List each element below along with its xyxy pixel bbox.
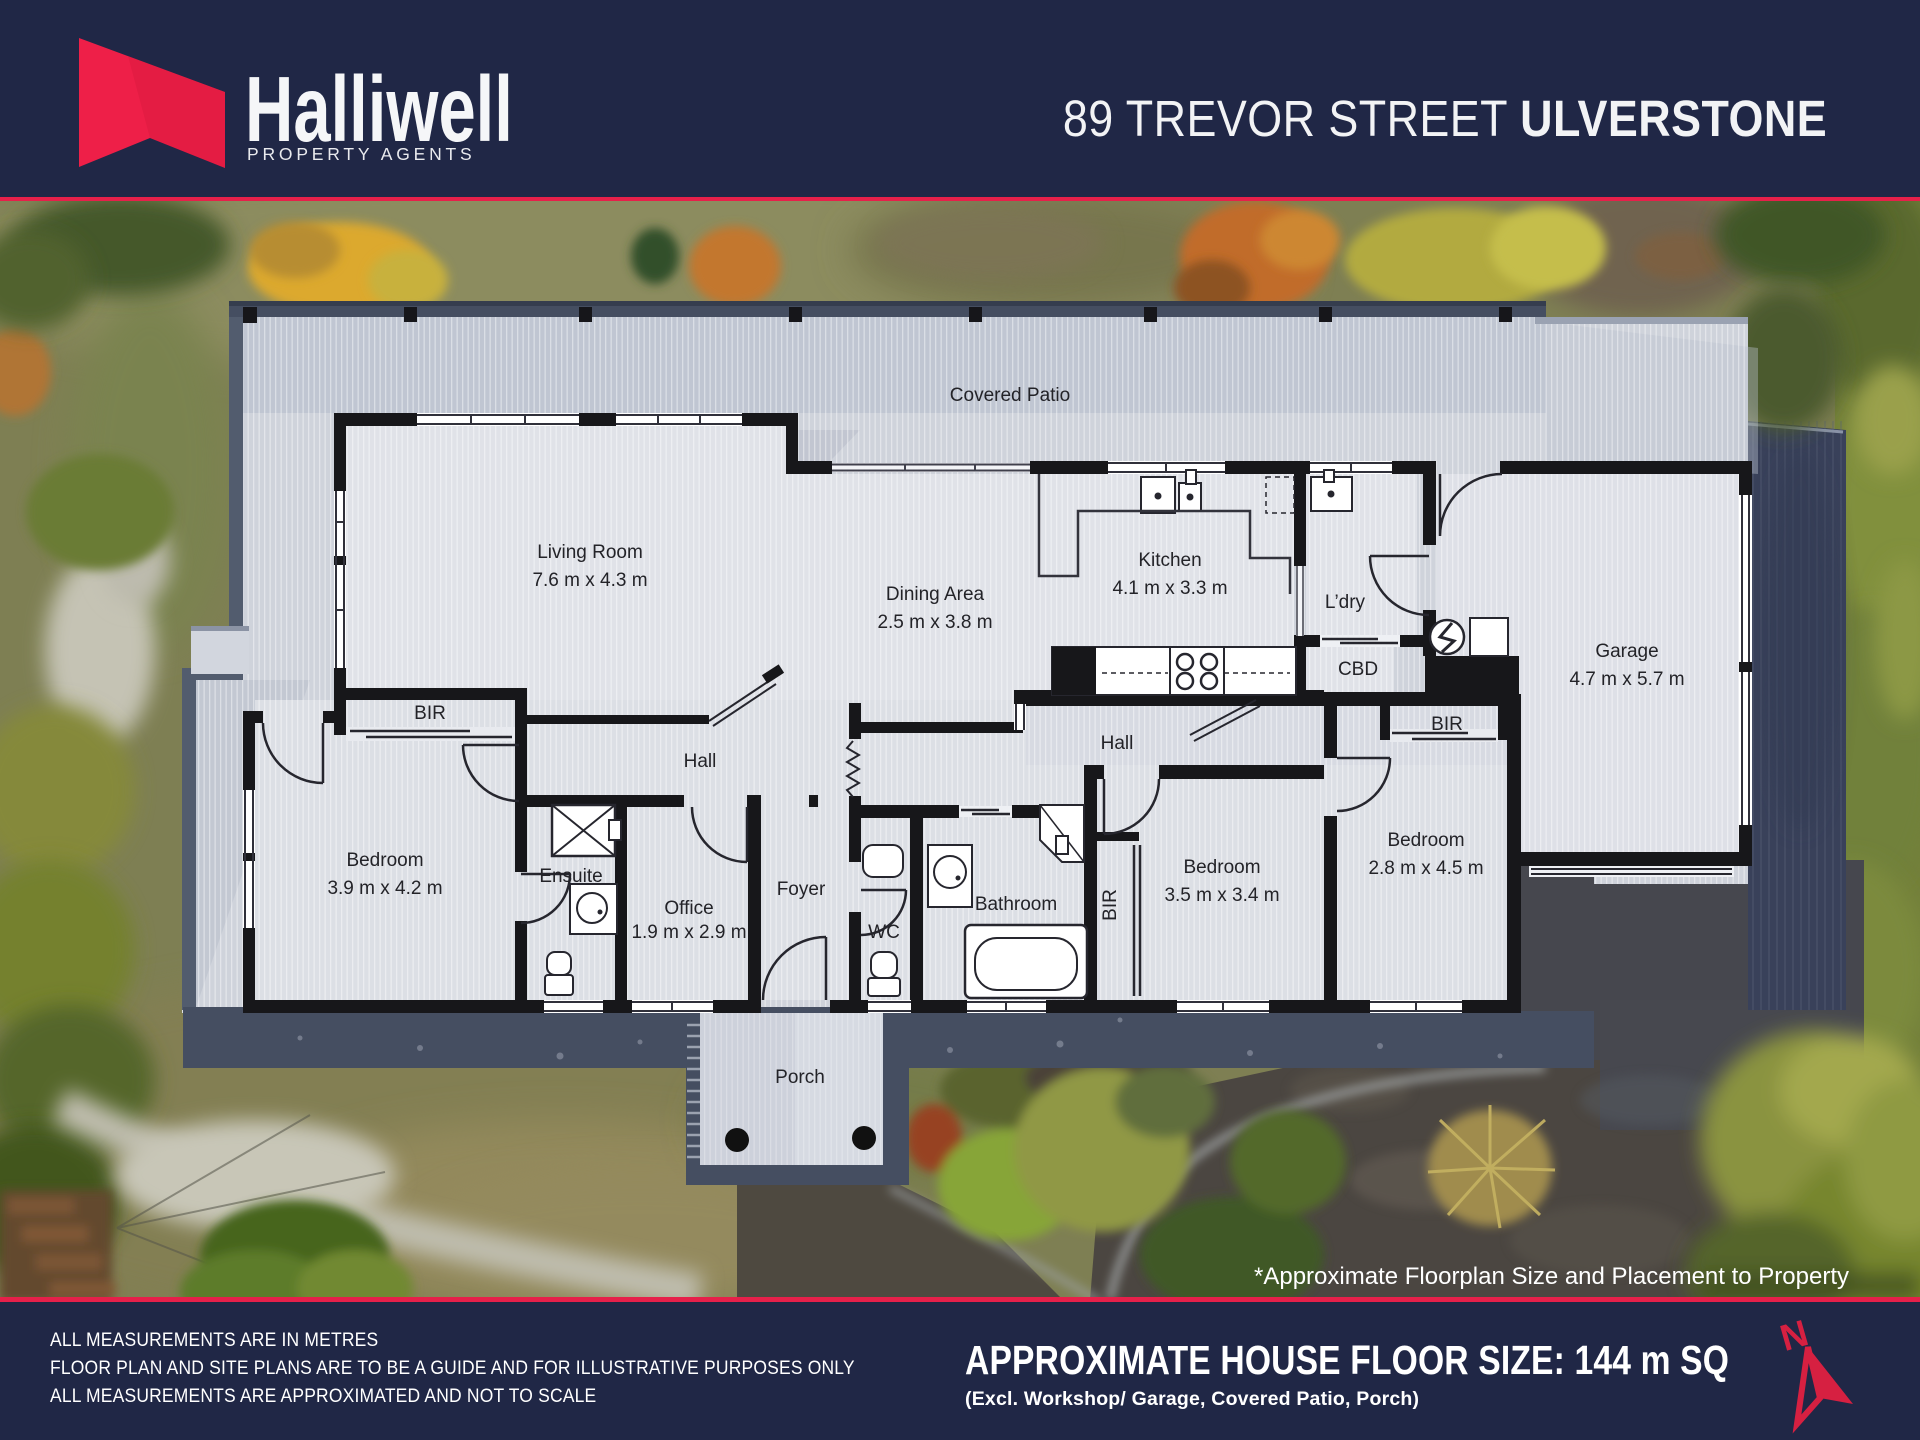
svg-text:Bedroom: Bedroom bbox=[1387, 830, 1464, 851]
svg-text:4.7 m x 5.7 m: 4.7 m x 5.7 m bbox=[1569, 669, 1684, 690]
svg-text:Living Room: Living Room bbox=[537, 542, 643, 563]
svg-text:BIR: BIR bbox=[414, 703, 446, 724]
svg-text:Covered Patio: Covered Patio bbox=[950, 385, 1070, 406]
svg-text:Garage: Garage bbox=[1595, 641, 1658, 662]
svg-text:Office: Office bbox=[664, 898, 713, 919]
svg-text:Porch: Porch bbox=[775, 1067, 825, 1088]
svg-text:WC: WC bbox=[868, 922, 900, 943]
svg-text:*Approximate Floorplan Size an: *Approximate Floorplan Size and Placemen… bbox=[1254, 1263, 1849, 1290]
svg-text:2.5 m x 3.8 m: 2.5 m x 3.8 m bbox=[877, 612, 992, 633]
svg-text:Hall: Hall bbox=[684, 751, 717, 772]
svg-text:7.6 m x 4.3 m: 7.6 m x 4.3 m bbox=[532, 570, 647, 591]
svg-text:Bathroom: Bathroom bbox=[975, 894, 1057, 915]
svg-text:CBD: CBD bbox=[1338, 659, 1378, 680]
svg-text:BIR: BIR bbox=[1431, 714, 1463, 735]
svg-text:BIR: BIR bbox=[1100, 889, 1121, 921]
svg-text:Bedroom: Bedroom bbox=[346, 850, 423, 871]
svg-text:Dining Area: Dining Area bbox=[886, 584, 985, 605]
svg-text:3.5 m x 3.4 m: 3.5 m x 3.4 m bbox=[1164, 885, 1279, 906]
svg-text:2.8 m x 4.5 m: 2.8 m x 4.5 m bbox=[1368, 858, 1483, 879]
svg-text:Foyer: Foyer bbox=[777, 879, 826, 900]
svg-text:1.9 m x 2.9 m: 1.9 m x 2.9 m bbox=[631, 922, 746, 943]
svg-text:4.1 m x 3.3 m: 4.1 m x 3.3 m bbox=[1112, 578, 1227, 599]
svg-text:Bedroom: Bedroom bbox=[1183, 857, 1260, 878]
svg-text:3.9 m x 4.2 m: 3.9 m x 4.2 m bbox=[327, 878, 442, 899]
svg-text:Hall: Hall bbox=[1101, 733, 1134, 754]
svg-text:Kitchen: Kitchen bbox=[1138, 550, 1201, 571]
svg-text:PROPERTY AGENTS: PROPERTY AGENTS bbox=[247, 144, 476, 164]
svg-text:Ensuite: Ensuite bbox=[539, 866, 602, 887]
svg-text:L’dry: L’dry bbox=[1325, 592, 1366, 613]
